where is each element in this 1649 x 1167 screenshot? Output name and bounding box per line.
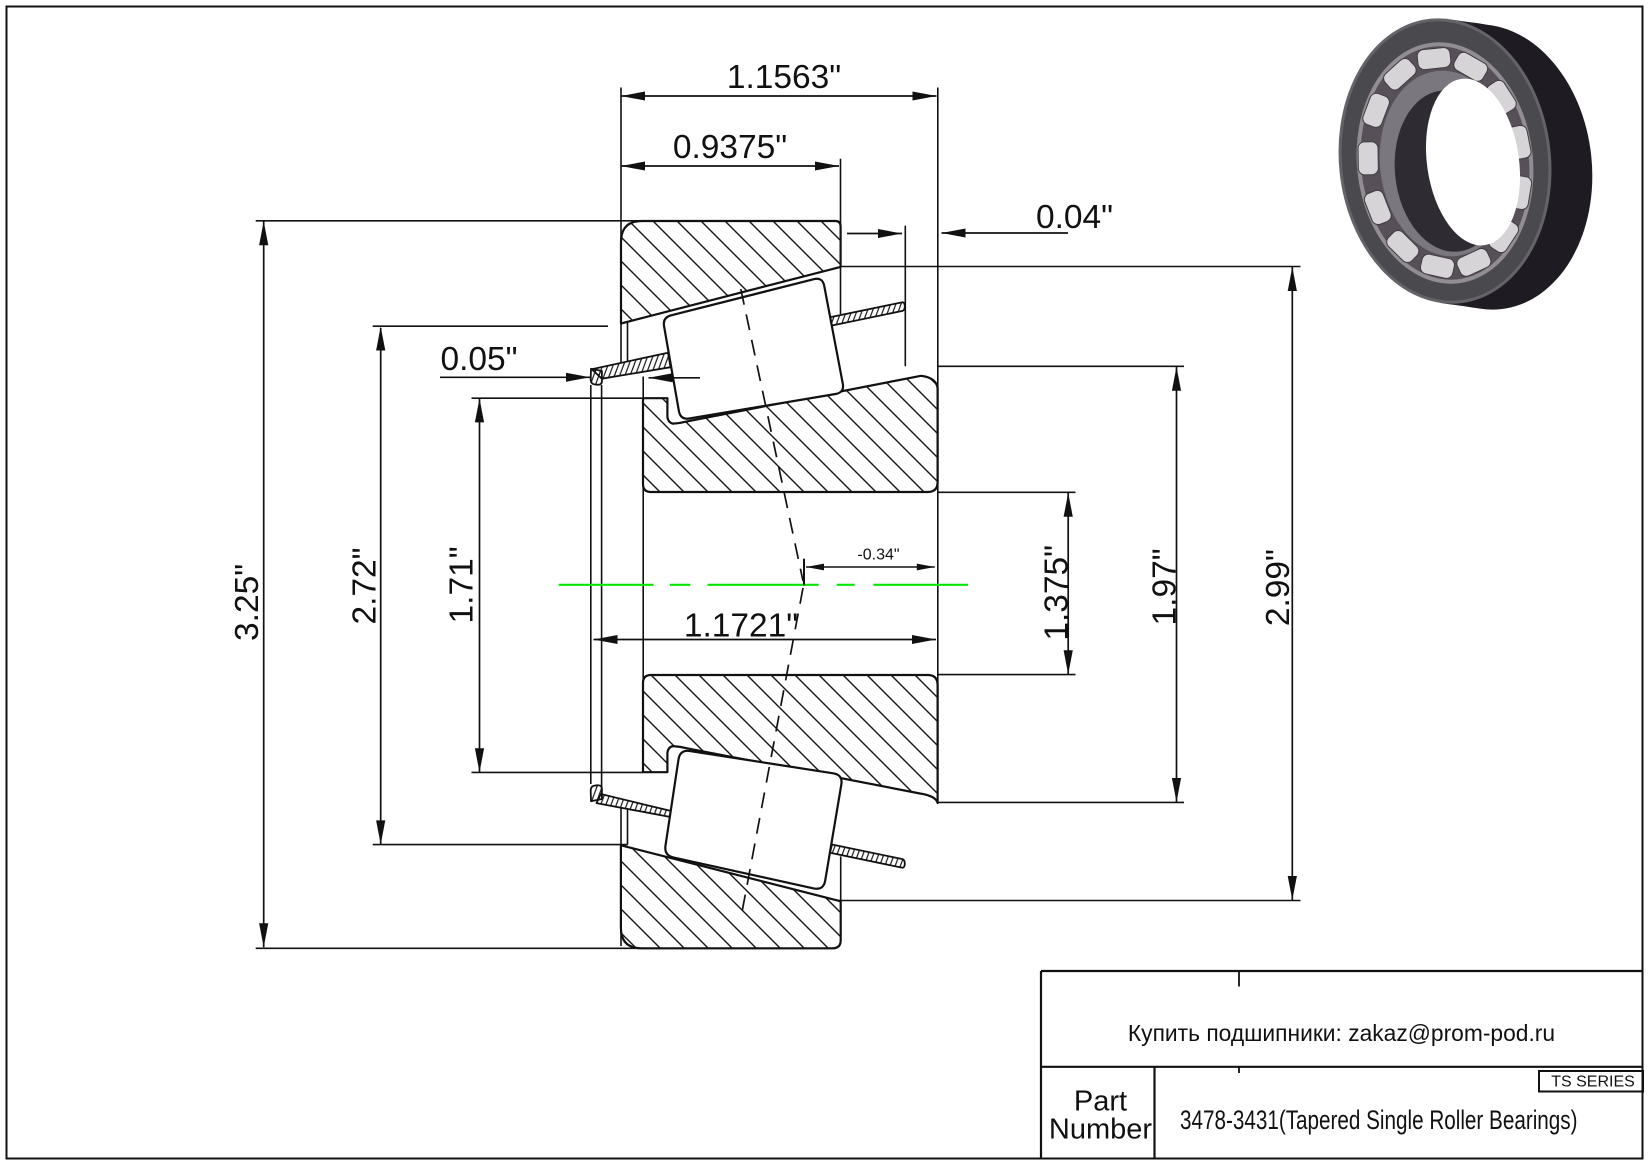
svg-text:1.375": 1.375" <box>1039 545 1076 641</box>
svg-text:3478-3431(Tapered Single Rolle: 3478-3431(Tapered Single Roller Bearings… <box>1180 1105 1577 1135</box>
svg-text:0.9375": 0.9375" <box>673 129 787 166</box>
svg-text:1.97": 1.97" <box>1147 548 1184 625</box>
svg-text:3.25": 3.25" <box>229 564 266 641</box>
svg-text:1.1721": 1.1721" <box>684 608 798 645</box>
svg-text:Купить подшипники: zakaz@prom-: Купить подшипники: zakaz@prom-pod.ru <box>1128 1020 1555 1046</box>
svg-text:0.04": 0.04" <box>1036 199 1113 236</box>
svg-text:TS SERIES: TS SERIES <box>1551 1074 1635 1091</box>
svg-text:-0.34": -0.34" <box>857 546 899 563</box>
svg-text:2.99": 2.99" <box>1260 549 1297 626</box>
svg-text:1.1563": 1.1563" <box>727 59 841 96</box>
svg-text:Number: Number <box>1049 1114 1152 1146</box>
svg-text:1.71": 1.71" <box>444 546 481 623</box>
svg-text:0.05": 0.05" <box>440 341 517 378</box>
svg-text:2.72": 2.72" <box>347 547 384 624</box>
